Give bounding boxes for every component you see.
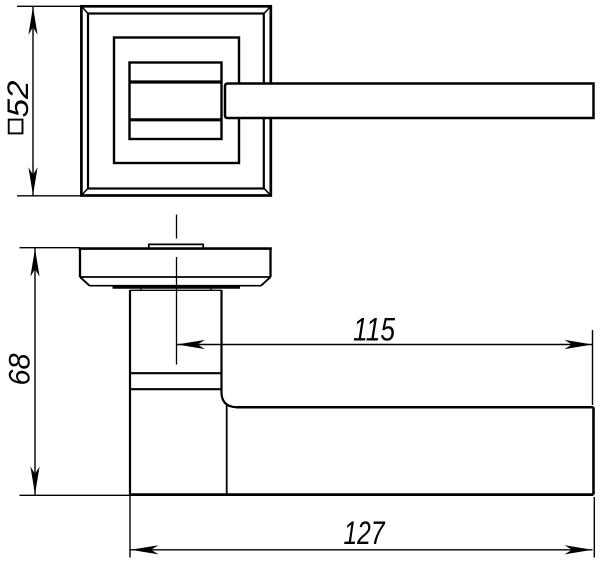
svg-text:127: 127	[344, 515, 386, 551]
svg-text:68: 68	[4, 353, 37, 385]
svg-text:115: 115	[353, 312, 395, 348]
svg-text:52: 52	[2, 80, 35, 117]
